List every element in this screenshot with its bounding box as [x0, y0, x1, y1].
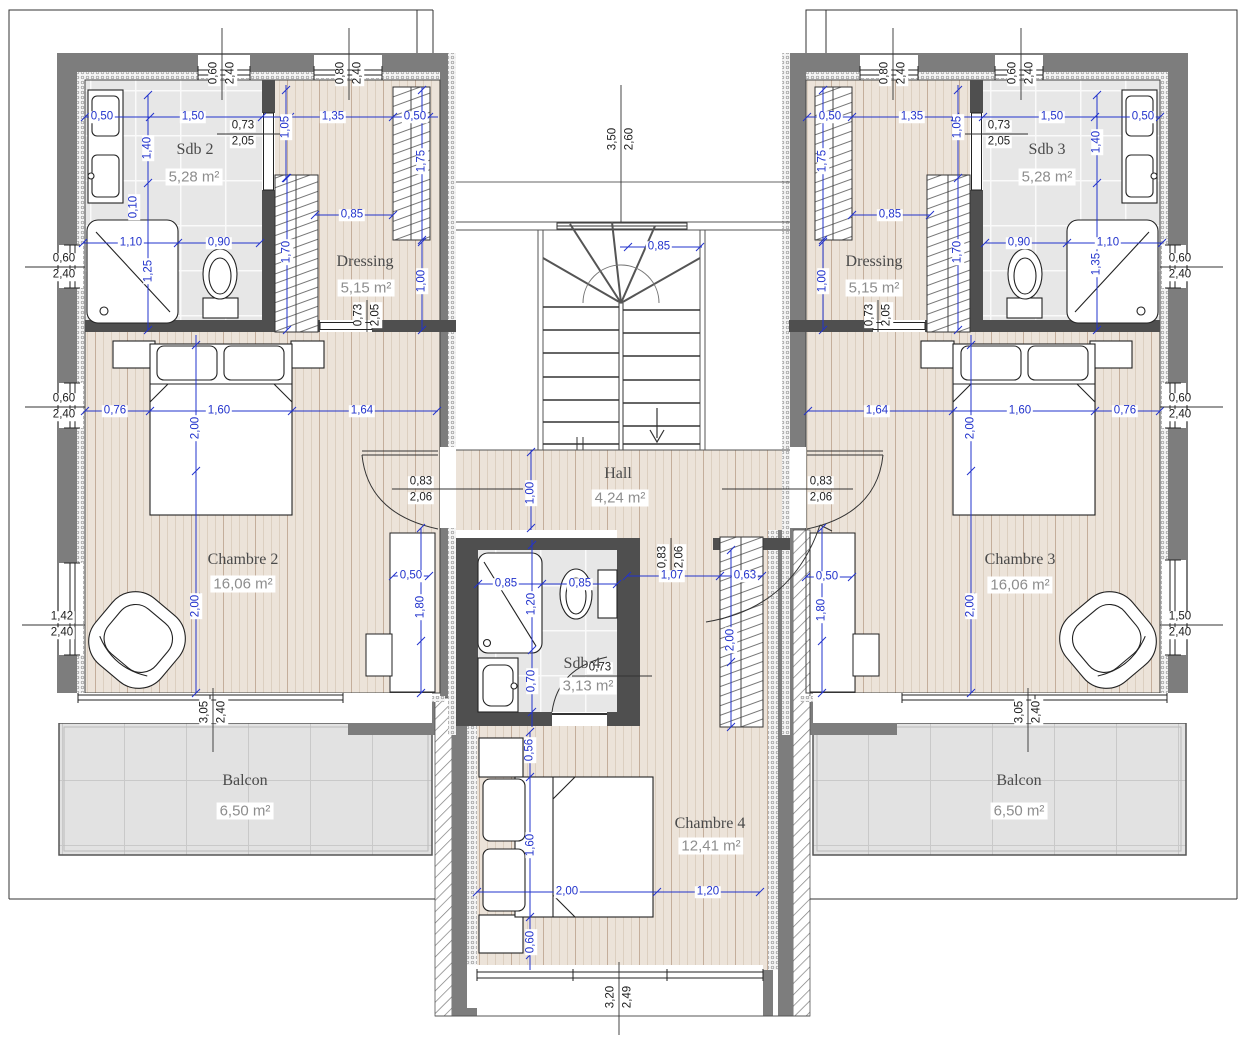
room-area: 16,06 m² [210, 576, 275, 593]
room-area: 12,41 m² [678, 838, 743, 855]
dimension-label: 1,60 [525, 832, 537, 858]
size-height-label: 2,05 [881, 302, 893, 328]
size-width-label: 0,83 [808, 476, 834, 488]
dimension-label: 1,50 [180, 111, 206, 123]
room-name: Chambre 2 [206, 552, 281, 568]
dimension-label: 0,85 [339, 209, 365, 221]
dimension-label: 0,10 [128, 194, 140, 220]
size-width-label: 0,60 [51, 253, 77, 265]
dimension-label: 1,20 [695, 886, 721, 898]
room-name: Hall [602, 466, 634, 482]
dimension-label: 1,75 [817, 148, 829, 174]
size-height-label: 2,40 [216, 699, 228, 725]
dimension-label: 1,35 [899, 111, 925, 123]
dimension-label: 1,64 [864, 405, 890, 417]
dimension-label: 0,50 [817, 111, 843, 123]
dimension-label: 1,75 [416, 148, 428, 174]
room-area: 3,13 m² [560, 678, 617, 695]
room-name: Balcon [220, 773, 269, 789]
dimension-label: 0,76 [1112, 405, 1138, 417]
dimension-label: 1,80 [816, 597, 828, 623]
dimension-label: 0,85 [877, 209, 903, 221]
dimension-label: 1,40 [142, 135, 154, 161]
size-height-label: 2,40 [1024, 60, 1036, 86]
size-width-label: 0,73 [864, 302, 876, 328]
dimension-label: 1,60 [206, 405, 232, 417]
dimension-label: 0,90 [206, 237, 232, 249]
room-area: 5,28 m² [1019, 169, 1076, 186]
dimension-label: 1,35 [1091, 251, 1103, 277]
dimension-label: 2,00 [725, 627, 737, 653]
size-width-label: 0,73 [986, 120, 1012, 132]
dimension-label: 0,63 [732, 570, 758, 582]
dimension-label: 1,60 [1007, 405, 1033, 417]
dimension-label: 1,00 [525, 480, 537, 506]
size-width-label: 3,05 [1014, 699, 1026, 725]
dimension-label: 1,10 [118, 237, 144, 249]
dimension-label: 1,25 [143, 258, 155, 284]
dimension-label: 0,60 [525, 929, 537, 955]
size-width-label: 3,05 [199, 699, 211, 725]
size-height-label: 2,40 [1167, 269, 1193, 281]
dimension-label: 0,70 [526, 668, 538, 694]
dimension-label: 1,64 [349, 405, 375, 417]
size-height-label: 2,40 [51, 269, 77, 281]
size-width-label: 0,60 [51, 393, 77, 405]
size-height-label: 2,49 [622, 984, 634, 1010]
dimension-label: 0,85 [493, 578, 519, 590]
dimension-label: 0,85 [567, 578, 593, 590]
size-width-label: 1,42 [49, 611, 75, 623]
size-height-label: 2,40 [352, 60, 364, 86]
room-name: Balcon [994, 773, 1043, 789]
room-area: 5,15 m² [338, 280, 395, 297]
dimension-label: 0,50 [398, 570, 424, 582]
size-height-label: 2,40 [51, 409, 77, 421]
size-height-label: 2,06 [408, 492, 434, 504]
size-width-label: 0,80 [879, 60, 891, 86]
size-width-label: 3,50 [607, 126, 619, 152]
size-height-label: 2,40 [49, 627, 75, 639]
size-height-label: 2,05 [986, 136, 1012, 148]
room-name: Chambre 3 [983, 552, 1058, 568]
size-height-label: 2,05 [230, 136, 256, 148]
size-height-label: 2,06 [674, 544, 686, 570]
size-width-label: 0,83 [657, 544, 669, 570]
size-width-label: 0,60 [208, 60, 220, 86]
size-height-label: 2,60 [624, 126, 636, 152]
dimension-label: 1,05 [952, 114, 964, 140]
size-width-label: 0,83 [408, 476, 434, 488]
dimension-label: 1,35 [320, 111, 346, 123]
size-height-label: 2,05 [370, 302, 382, 328]
size-width-label: 0,73 [353, 302, 365, 328]
dimension-label: 1,00 [817, 268, 829, 294]
size-height-label: 2,40 [1167, 409, 1193, 421]
dimension-label: 0,50 [1130, 111, 1156, 123]
dimension-label: 1,80 [415, 594, 427, 620]
room-area: 6,50 m² [991, 803, 1048, 820]
room-area: 6,50 m² [217, 803, 274, 820]
room-area: 16,06 m² [987, 577, 1052, 594]
size-height-label: 2,40 [225, 60, 237, 86]
dimension-label: 1,07 [659, 570, 685, 582]
floor-plan: 0,732,050,732,050,832,060,832,060,732,05… [0, 0, 1245, 1038]
dimension-label: 0,50 [814, 571, 840, 583]
dimension-label: 2,00 [965, 593, 977, 619]
room-name: Sdb 2 [175, 142, 216, 158]
size-width-label: 1,50 [1167, 611, 1193, 623]
size-height-label: 2,40 [1031, 699, 1043, 725]
size-height-label: 2,06 [808, 492, 834, 504]
room-area: 5,28 m² [166, 169, 223, 186]
dimension-label: 0,85 [646, 241, 672, 253]
size-width-label: 0,60 [1167, 253, 1193, 265]
dimension-label: 1,00 [416, 268, 428, 294]
dimension-label: 0,90 [1006, 237, 1032, 249]
room-area: 4,24 m² [592, 490, 649, 507]
size-height-label: 2,40 [1167, 627, 1193, 639]
dimension-label: 0,56 [524, 737, 536, 763]
size-width-label: 3,20 [605, 984, 617, 1010]
room-name: Dressing [844, 254, 905, 270]
dimension-label: 1,20 [526, 591, 538, 617]
size-width-label: 0,80 [335, 60, 347, 86]
size-width-label: 0,60 [1007, 60, 1019, 86]
dimension-label: 1,50 [1039, 111, 1065, 123]
size-width-label: 0,60 [1167, 393, 1193, 405]
dimension-label: 0,76 [102, 405, 128, 417]
room-name: Sdb 3 [1027, 142, 1068, 158]
dimension-label: 1,70 [281, 239, 293, 265]
dimension-label: 1,05 [280, 114, 292, 140]
dimension-label: 1,40 [1091, 129, 1103, 155]
dimension-label: 1,10 [1095, 237, 1121, 249]
dimension-label: 2,00 [554, 886, 580, 898]
room-area: 5,15 m² [846, 280, 903, 297]
plan-labels: 0,732,050,732,050,832,060,832,060,732,05… [0, 0, 1245, 1038]
room-name: Chambre 4 [673, 816, 748, 832]
dimension-label: 2,00 [965, 415, 977, 441]
room-name: Sdb 4 [562, 656, 603, 672]
dimension-label: 0,50 [89, 111, 115, 123]
dimension-label: 1,70 [952, 239, 964, 265]
size-height-label: 2,40 [896, 60, 908, 86]
dimension-label: 0,50 [402, 111, 428, 123]
room-name: Dressing [335, 254, 396, 270]
dimension-label: 2,00 [190, 593, 202, 619]
size-width-label: 0,73 [230, 120, 256, 132]
dimension-label: 2,00 [190, 415, 202, 441]
